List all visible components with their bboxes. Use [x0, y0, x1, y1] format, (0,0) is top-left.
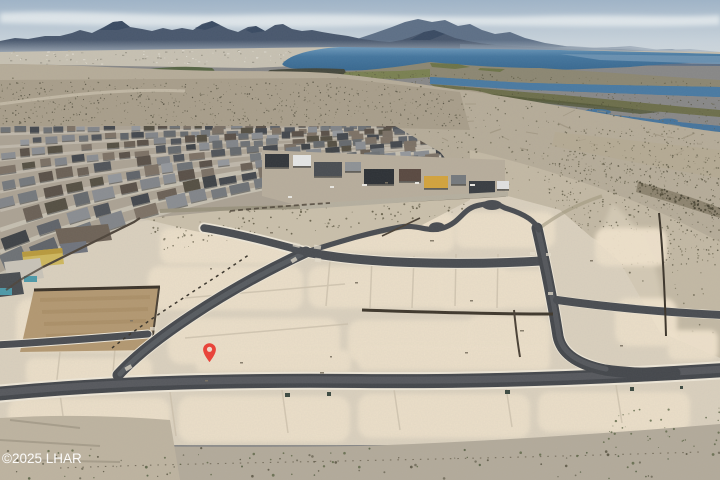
svg-text:©2025 LHAR: ©2025 LHAR	[2, 451, 82, 466]
